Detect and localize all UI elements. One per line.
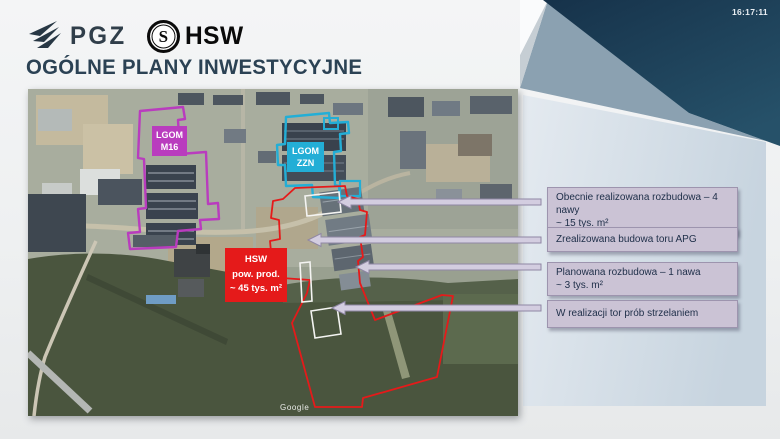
pgz-logo-icon (28, 21, 64, 51)
satellite-map: LGOM M16 LGOM ZZN HSW pow. prod. ~ 45 ty… (28, 89, 518, 416)
slide: PGZ S HSW OGÓLNE PLANY INWESTYCYJNE 16:1… (0, 0, 780, 439)
callout-4-line1: W realizacji tor prób strzelaniem (556, 307, 729, 320)
brand-bar: PGZ S HSW (28, 20, 245, 52)
callout-3-line1: Planowana rozbudowa – 1 nawa (556, 266, 729, 279)
zzn-line1: LGOM (287, 145, 324, 157)
hsw-line3: ~ 45 tys. m² (225, 282, 287, 297)
callout-box-firing-test-track: W realizacji tor prób strzelaniem (547, 300, 738, 328)
callout-2-line1: Zrealizowana budowa toru APG (556, 233, 729, 246)
pgz-wordmark: PGZ (70, 22, 127, 51)
hsw-wordmark: HSW (185, 22, 244, 51)
map-attribution: Google (280, 403, 309, 412)
callout-1-line1: Obecnie realizowana rozbudowa – 4 nawy (556, 191, 729, 217)
hsw-monogram: S (159, 28, 168, 45)
area-label-hsw: HSW pow. prod. ~ 45 tys. m² (225, 248, 287, 302)
area-label-lgom-zzn: LGOM ZZN (287, 142, 324, 172)
zzn-line2: ZZN (287, 157, 324, 169)
callout-3-line2: ~ 3 tys. m² (556, 279, 729, 292)
m16-line1: LGOM (152, 129, 187, 141)
callout-box-planned-expansion: Planowana rozbudowa – 1 nawa ~ 3 tys. m² (547, 262, 738, 296)
hsw-line1: HSW (225, 253, 287, 268)
area-label-lgom-m16: LGOM M16 (152, 126, 187, 156)
hsw-logo-icon: S (147, 20, 180, 53)
page-title: OGÓLNE PLANY INWESTYCYJNE (26, 56, 362, 80)
callout-box-apg-track: Zrealizowana budowa toru APG (547, 227, 738, 252)
hsw-line2: pow. prod. (225, 268, 287, 283)
recording-timestamp: 16:17:11 (732, 7, 768, 17)
m16-line2: M16 (152, 141, 187, 153)
